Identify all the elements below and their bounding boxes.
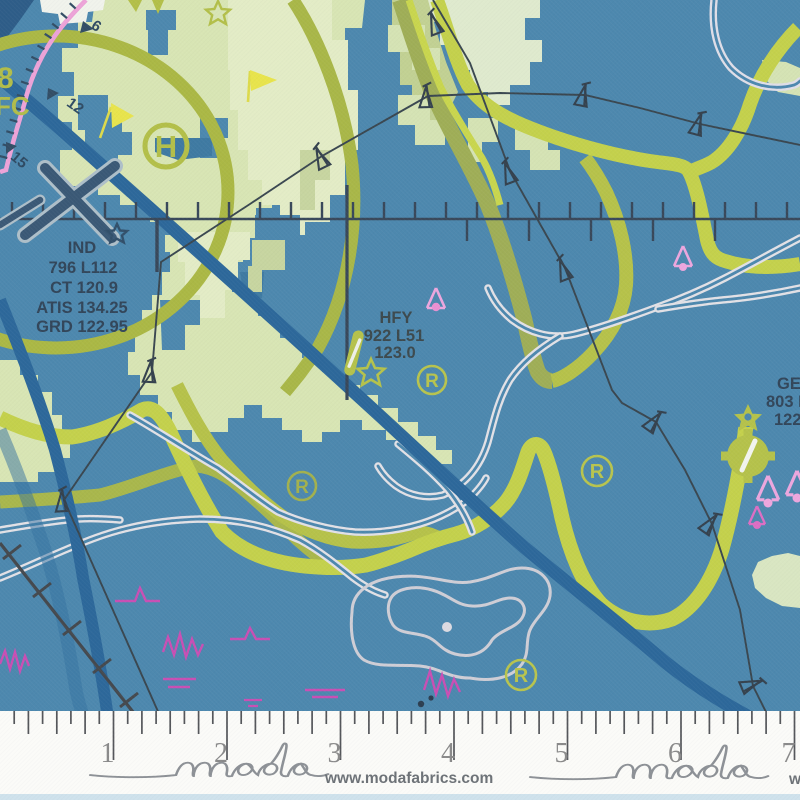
svg-text:R: R bbox=[590, 461, 605, 483]
svg-text:803 L: 803 L bbox=[766, 393, 800, 411]
svg-text:H: H bbox=[155, 129, 177, 164]
svg-text:R: R bbox=[514, 665, 529, 687]
svg-text:w: w bbox=[788, 771, 800, 788]
svg-text:FC: FC bbox=[0, 91, 30, 121]
svg-text:7: 7 bbox=[782, 738, 796, 769]
svg-text:CT 120.9: CT 120.9 bbox=[50, 279, 118, 297]
svg-text:922 L51: 922 L51 bbox=[364, 327, 425, 345]
svg-text:R: R bbox=[425, 371, 439, 392]
svg-text:R: R bbox=[295, 477, 309, 498]
svg-text:5: 5 bbox=[555, 738, 569, 769]
svg-text:GEZ: GEZ bbox=[777, 375, 800, 393]
svg-text:796 L112: 796 L112 bbox=[49, 259, 118, 277]
svg-text:HFY: HFY bbox=[380, 309, 413, 327]
svg-text:6: 6 bbox=[668, 738, 682, 769]
svg-text:123.0: 123.0 bbox=[374, 344, 415, 362]
svg-text:3: 3 bbox=[328, 738, 342, 769]
svg-text:www.modafabrics.com: www.modafabrics.com bbox=[324, 770, 493, 787]
svg-text:ATIS 134.25: ATIS 134.25 bbox=[36, 299, 127, 317]
svg-text:GRD 122.95: GRD 122.95 bbox=[36, 318, 128, 336]
svg-text:122.: 122. bbox=[774, 411, 800, 429]
svg-text:IND: IND bbox=[68, 239, 97, 257]
svg-text:1: 1 bbox=[101, 738, 115, 769]
svg-text:4: 4 bbox=[441, 738, 455, 769]
